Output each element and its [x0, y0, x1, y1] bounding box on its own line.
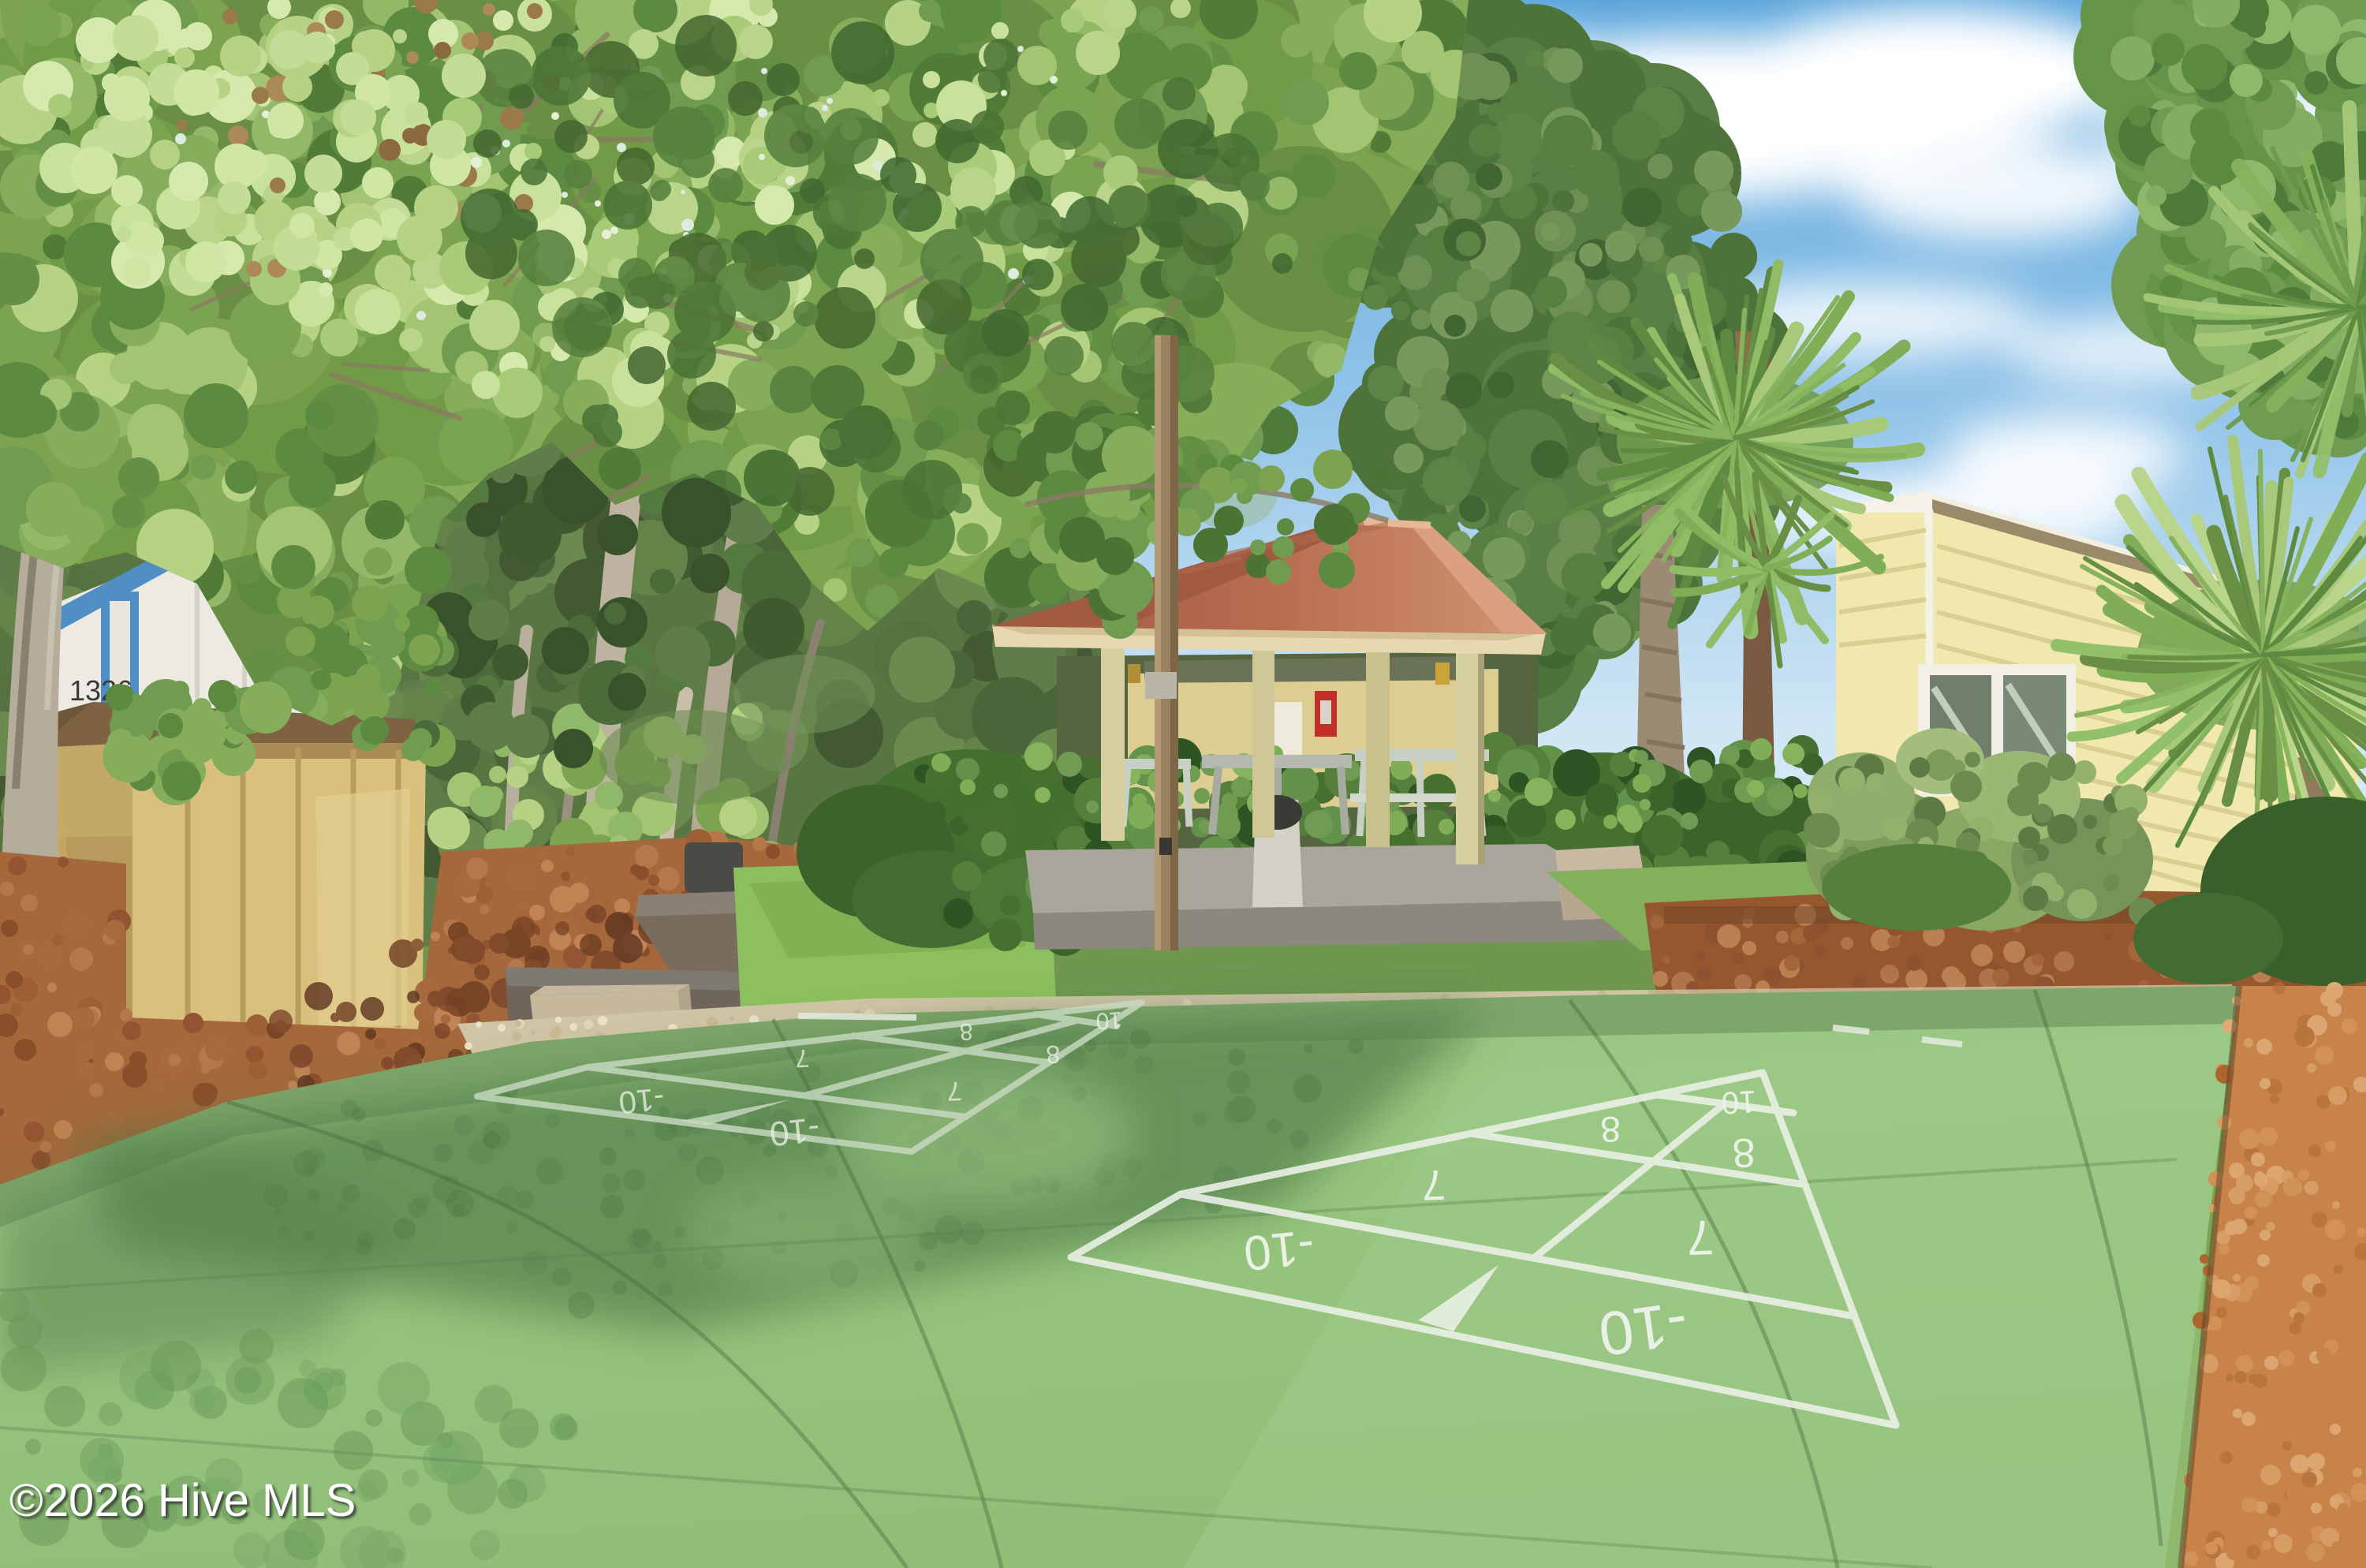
svg-text:©2026 Hive MLS: ©2026 Hive MLS: [9, 1475, 356, 1526]
svg-text:7: 7: [1421, 1160, 1446, 1208]
svg-text:10: 10: [1721, 1084, 1758, 1120]
svg-text:-10: -10: [1595, 1289, 1692, 1370]
svg-text:-10: -10: [617, 1081, 666, 1120]
svg-text:-10: -10: [1241, 1219, 1317, 1281]
svg-text:8: 8: [1732, 1129, 1756, 1176]
svg-text:8: 8: [1046, 1040, 1061, 1070]
svg-text:7: 7: [795, 1044, 810, 1073]
svg-text:8: 8: [1599, 1109, 1621, 1151]
svg-text:7: 7: [946, 1076, 962, 1107]
svg-text:7: 7: [1686, 1209, 1715, 1264]
svg-text:-10: -10: [767, 1110, 821, 1153]
svg-text:10: 10: [1095, 1006, 1123, 1034]
svg-text:8: 8: [959, 1018, 973, 1045]
